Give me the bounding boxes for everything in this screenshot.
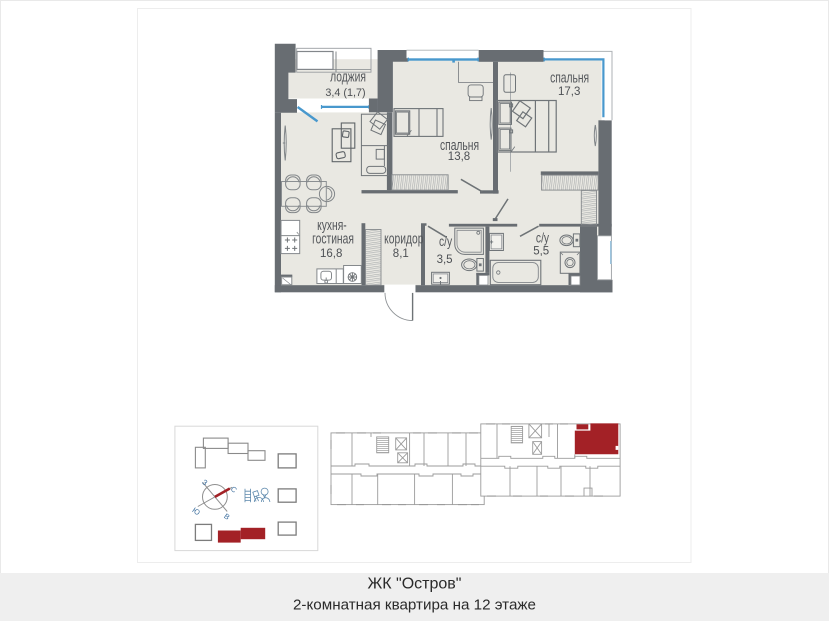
svg-text:коридор: коридор: [384, 230, 423, 247]
svg-text:3,4 (1,7): 3,4 (1,7): [325, 87, 365, 99]
svg-text:лоджия: лоджия: [330, 68, 366, 85]
svg-text:8,1: 8,1: [393, 248, 409, 260]
svg-text:гостиная: гостиная: [312, 230, 354, 247]
svg-text:5,5: 5,5: [533, 246, 549, 258]
svg-text:13,8: 13,8: [448, 151, 470, 163]
svg-text:17,3: 17,3: [558, 86, 580, 98]
svg-text:спальня: спальня: [550, 68, 589, 85]
svg-text:с/у: с/у: [536, 230, 549, 246]
svg-text:с/у: с/у: [439, 233, 452, 249]
svg-text:3,5: 3,5: [437, 254, 453, 266]
svg-text:2-комнатная квартира на 12 эта: 2-комнатная квартира на 12 этаже: [293, 597, 536, 614]
svg-text:ЖК "Остров": ЖК "Остров": [368, 576, 462, 593]
svg-text:16,8: 16,8: [320, 248, 342, 260]
